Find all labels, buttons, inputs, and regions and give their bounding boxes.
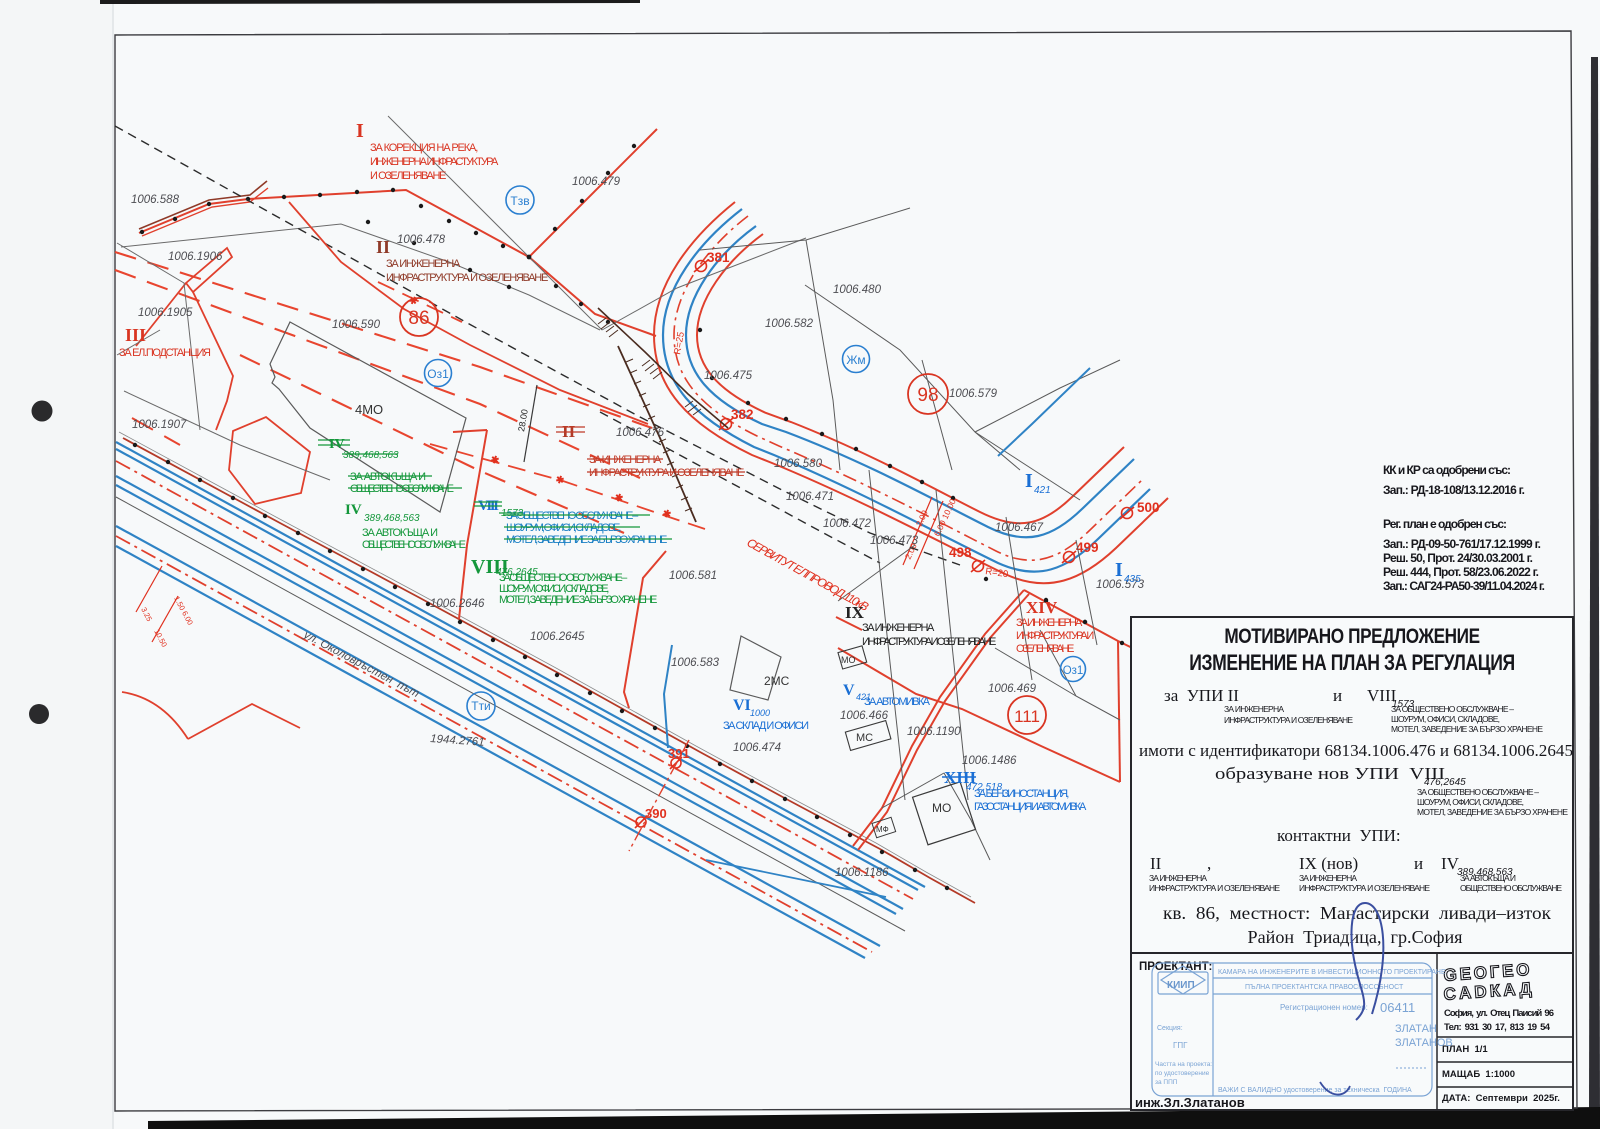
svg-text:1006.478: 1006.478 [397,234,446,246]
svg-text:МС: МС [856,732,873,744]
svg-text:II: II [1150,854,1162,873]
svg-text:ЗА ЕЛ.ПОДСТАНЦИЯ: ЗА ЕЛ.ПОДСТАНЦИЯ [119,347,211,359]
svg-text:ШОУРУМ, ОФИСИ, СКЛАДОВЕ,: ШОУРУМ, ОФИСИ, СКЛАДОВЕ, [506,522,621,534]
svg-text:390: 390 [645,806,667,821]
svg-text:ИНФРАСТРУКТУРА И ОЗЕЛЕНЯВАНЕ: ИНФРАСТРУКТУРА И ОЗЕЛЕНЯВАНЕ [862,636,996,648]
svg-text:ОБЩЕСТВЕНО ОБСЛУЖВАНЕ: ОБЩЕСТВЕНО ОБСЛУЖВАНЕ [362,539,466,551]
svg-text:06411: 06411 [1380,1000,1415,1015]
svg-text:389,468,563: 389,468,563 [364,513,420,524]
svg-text:1006.1486: 1006.1486 [962,755,1017,767]
svg-text:ИНФРАСТРУКТУРА И ОЗЕЛЕНЯВАНЕ: ИНФРАСТРУКТУРА И ОЗЕЛЕНЯВАНЕ [1224,715,1353,725]
svg-text:Тзв: Тзв [510,194,529,208]
svg-text:1006.583: 1006.583 [671,657,720,669]
svg-text:391: 391 [668,746,690,761]
svg-text:образуване нов УПИ VIII: образуване нов УПИ VIII [1215,764,1445,783]
svg-text:IX: IX [845,603,865,622]
svg-text:ЗА ОБЩЕСТВЕНО ОБСЛУЖВАНЕ –: ЗА ОБЩЕСТВЕНО ОБСЛУЖВАНЕ – [1417,787,1539,797]
svg-text:ЗА АВТОКЪЩА И: ЗА АВТОКЪЩА И [362,527,438,539]
svg-text:ШОУРУМ, ОФИСИ, СКЛАДОВЕ,: ШОУРУМ, ОФИСИ, СКЛАДОВЕ, [1391,714,1500,724]
svg-text:1006.1907: 1006.1907 [132,419,187,431]
svg-text:МО: МО [841,655,856,665]
svg-text:1006.581: 1006.581 [669,570,717,582]
svg-text:ЗА ОБЩЕСТВЕНО ОБСЛУЖВАНЕ –: ЗА ОБЩЕСТВЕНО ОБСЛУЖВАНЕ – [1391,704,1514,714]
svg-text:VI: VI [733,697,751,714]
svg-text:IV: IV [345,502,362,518]
svg-text:ЗА СКЛАД И ОФИСИ: ЗА СКЛАД И ОФИСИ [723,720,809,732]
svg-text:ИНФРАСТРУКТУРА И ОЗЕЛЕНЯВАНЕ: ИНФРАСТРУКТУРА И ОЗЕЛЕНЯВАНЕ [1299,883,1430,893]
svg-text:МОТИВИРАНО ПРЕДЛОЖЕНИЕ: МОТИВИРАНО ПРЕДЛОЖЕНИЕ [1224,624,1480,648]
svg-text:ЗЛАТАН: ЗЛАТАН [1395,1023,1437,1035]
svg-text:И ОЗЕЛЕНЯВАНЕ: И ОЗЕЛЕНЯВАНЕ [370,170,446,182]
svg-text:ЗА ИНЖЕНЕРНА: ЗА ИНЖЕНЕРНА [589,454,662,466]
svg-text:ЗА ИНЖЕНЕРНА: ЗА ИНЖЕНЕРНА [862,622,935,634]
svg-text:1006.474: 1006.474 [733,742,781,754]
svg-text:II: II [376,237,390,257]
svg-text:4МО: 4МО [355,402,383,417]
svg-text:КАМАРА НА ИНЖЕНЕРИТЕ В ИНВЕСТИ: КАМАРА НА ИНЖЕНЕРИТЕ В ИНВЕСТИЦИОННОТО П… [1218,969,1446,976]
svg-text:1006.2645: 1006.2645 [530,631,585,643]
svg-text:1006.588: 1006.588 [131,194,180,206]
svg-text:1006.467: 1006.467 [995,522,1044,534]
svg-text:ИНФРАСТРУКТУРА И ОЗЕЛЕНЯВАНЕ: ИНФРАСТРУКТУРА И ОЗЕЛЕНЯВАНЕ [386,272,548,284]
svg-text:1006.1906: 1006.1906 [168,251,223,263]
svg-text:V: V [843,682,855,699]
svg-text:98: 98 [917,385,938,406]
svg-text:Тти: Тти [471,699,491,713]
svg-text:Район Триадица, гр.София: Район Триадица, гр.София [1248,927,1463,947]
svg-text:Реш. 444, Прот. 58/23.06.2022: Реш. 444, Прот. 58/23.06.2022 г. [1383,565,1539,579]
svg-text:499: 499 [1076,540,1099,555]
svg-text:ГАЗОСТАНЦИЯ И АВТОМИВКА: ГАЗОСТАНЦИЯ И АВТОМИВКА [974,801,1087,813]
svg-text:1006.476: 1006.476 [616,427,665,439]
svg-text:381: 381 [707,250,730,265]
svg-text:по удостоверение: по удостоверение [1155,1070,1210,1077]
svg-text:1006.579: 1006.579 [949,388,998,400]
svg-text:МОТЕЛ, ЗАВЕДЕНИЕ ЗА БЪРЗО ХРАН: МОТЕЛ, ЗАВЕДЕНИЕ ЗА БЪРЗО ХРАНЕНЕ [499,594,657,606]
svg-text:III: III [125,325,146,345]
svg-text:и: и [1333,686,1342,705]
svg-text:XIV: XIV [1026,598,1058,617]
svg-text:1006.582: 1006.582 [765,318,814,330]
svg-text:ЗА ИНЖЕНЕРНА: ЗА ИНЖЕНЕРНА [386,258,461,270]
svg-text:ЗА ИНЖЕНЕРНА: ЗА ИНЖЕНЕРНА [1149,873,1207,883]
svg-text:ИНФРАСТРУКТУРА И ОЗЕЛЕНЯВАНЕ: ИНФРАСТРУКТУРА И ОЗЕЛЕНЯВАНЕ [1149,883,1280,893]
svg-text:1006.1190: 1006.1190 [907,726,961,738]
svg-text:контактни УПИ:: контактни УПИ: [1277,826,1401,845]
svg-text:ОЗЕЛЕНЯВАНЕ: ОЗЕЛЕНЯВАНЕ [1016,643,1074,655]
svg-text:ИНЖЕНЕРНА ИНФРАСТУКТУРА: ИНЖЕНЕРНА ИНФРАСТУКТУРА [370,156,499,168]
svg-text:Тел: 931 30 17, 813 19 5: Тел: 931 30 17, 813 19 54 [1444,1022,1551,1033]
svg-text:ЗА БЕНЗИНОСТАНЦИЯ,: ЗА БЕНЗИНОСТАНЦИЯ, [974,788,1069,800]
svg-text:1006.2646: 1006.2646 [430,598,485,610]
svg-text:за ППП: за ППП [1155,1079,1178,1086]
svg-text:1006.475: 1006.475 [704,370,753,382]
svg-text:МО: МО [932,801,951,815]
svg-text:I: I [356,120,364,142]
svg-text:КК и КР са одобрени със:: КК и КР са одобрени със: [1383,463,1511,477]
svg-text:1006.479: 1006.479 [572,176,621,188]
svg-text:МАЩАБ 1:1000: МАЩАБ 1:1000 [1442,1069,1515,1080]
svg-text:ИНФРАСТРУКТУРА И: ИНФРАСТРУКТУРА И [1016,630,1094,642]
svg-text:I: I [1115,559,1123,581]
svg-text:111: 111 [1014,707,1040,726]
svg-text:1006.472: 1006.472 [823,518,872,530]
svg-text:Жм: Жм [846,353,865,367]
svg-text:1006.480: 1006.480 [833,284,882,296]
svg-text:ЗА ИНЖЕНЕРНА: ЗА ИНЖЕНЕРНА [1016,617,1083,629]
svg-text:ЗА ИНЖЕНЕРНА: ЗА ИНЖЕНЕРНА [1224,704,1284,714]
svg-text:421: 421 [1034,485,1051,496]
svg-text:инж.Зл.Златанов: инж.Зл.Златанов [1135,1095,1245,1110]
svg-text:IX (нов): IX (нов) [1299,854,1358,873]
svg-text:Оз1: Оз1 [427,367,449,381]
svg-text:,: , [1207,854,1211,873]
svg-text:ЗА КОРЕКЦИЯ НА РЕКА,: ЗА КОРЕКЦИЯ НА РЕКА, [370,142,478,154]
svg-text:КИИП: КИИП [1167,980,1195,991]
svg-text:ЗА АВТОМИВКА: ЗА АВТОМИВКА [864,696,931,708]
svg-text:Оз1: Оз1 [1063,665,1084,677]
svg-text:1006.473: 1006.473 [870,535,919,547]
svg-text:1006.590: 1006.590 [332,319,381,331]
svg-text:I: I [1025,470,1033,492]
svg-text:ДАТА: Септември 2025г.: ДАТА: Септември 2025г. [1442,1093,1560,1104]
svg-text:ЗА ИНЖЕНЕРНА: ЗА ИНЖЕНЕРНА [1299,873,1357,883]
svg-text:435: 435 [1124,574,1141,585]
svg-text:Секция:: Секция: [1157,1025,1183,1032]
svg-text:ГПГ: ГПГ [1173,1041,1188,1050]
svg-text:ОБЩЕСТВЕНО ОБСЛУЖВАНЕ: ОБЩЕСТВЕНО ОБСЛУЖВАНЕ [350,483,454,495]
svg-text:Зап.: РД-18-108/13.12.2016 г.: Зап.: РД-18-108/13.12.2016 г. [1383,483,1525,497]
svg-text:Рег. план е одобрен със:: Рег. план е одобрен със: [1383,517,1507,531]
svg-text:МОТЕЛ, ЗАВЕДЕНИЕ ЗА БЪРЗО ХРАН: МОТЕЛ, ЗАВЕДЕНИЕ ЗА БЪРЗО ХРАНЕНЕ [1391,724,1543,734]
svg-text:1006.1186: 1006.1186 [835,867,889,879]
svg-text:ИНФРАСТРУКТУРА И ОЗЕЛЕНЯВАНЕ: ИНФРАСТРУКТУРА И ОЗЕЛЕНЯВАНЕ [589,467,744,479]
svg-text:389,468,563: 389,468,563 [343,450,399,461]
svg-text:1006.1905: 1006.1905 [138,307,193,319]
svg-text:382: 382 [731,407,754,422]
svg-text:ЗЛАТАНОВ: ЗЛАТАНОВ [1395,1037,1453,1049]
svg-text:86: 86 [408,308,429,329]
svg-text:ЗА ОБЩЕСТВЕНО ОБСЛУЖВАНЕ –: ЗА ОБЩЕСТВЕНО ОБСЛУЖВАНЕ – [506,510,639,522]
svg-text:Зап.: РД-09-50-761/17.12.1999: Зап.: РД-09-50-761/17.12.1999 г. [1383,537,1541,551]
svg-text:МОТЕЛ, ЗАВЕДЕНИЕ ЗА БЪРЗО ХРАН: МОТЕЛ, ЗАВЕДЕНИЕ ЗА БЪРЗО ХРАНЕНЕ [1417,807,1568,817]
svg-text:и: и [1414,854,1423,873]
svg-text:Регистрационен номер:: Регистрационен номер: [1280,1003,1368,1012]
svg-text:ЗА АВТОКЪЩА И: ЗА АВТОКЪЩА И [350,471,426,483]
svg-text:ИЗМЕНЕНИЕ НА ПЛАН ЗА РЕГУЛАЦИЯ: ИЗМЕНЕНИЕ НА ПЛАН ЗА РЕГУЛАЦИЯ [1189,651,1514,675]
svg-text:ОБЩЕСТВЕНО ОБСЛУЖВАНЕ: ОБЩЕСТВЕНО ОБСЛУЖВАНЕ [1460,883,1562,893]
svg-text:1000: 1000 [750,708,770,718]
svg-text:498: 498 [949,545,972,560]
svg-text:500: 500 [1137,500,1160,515]
svg-text:Частта на проекта:: Частта на проекта: [1155,1061,1212,1068]
svg-text:София, ул. Отец Паисий 96: София, ул. Отец Паисий 96 [1444,1008,1554,1019]
svg-text:МОТЕЛ, ЗАВЕДЕНИЕ ЗА БЪРЗО ХРАН: МОТЕЛ, ЗАВЕДЕНИЕ ЗА БЪРЗО ХРАНЕНЕ [506,534,667,546]
svg-text:Реш. 50, Прот. 24/30.03.2001 г: Реш. 50, Прот. 24/30.03.2001 г. [1383,551,1533,565]
svg-text:ВАЖИ С ВАЛИДНО удостоверение з: ВАЖИ С ВАЛИДНО удостоверение за техничес… [1218,1087,1412,1094]
svg-text:МФ: МФ [876,825,889,834]
svg-text:ШОУРУМ, ОФИСИ, СКЛАДОВЕ,: ШОУРУМ, ОФИСИ, СКЛАДОВЕ, [1417,797,1524,807]
svg-text:Зап.: САГ24-РА50-39/11.04.2024: Зап.: САГ24-РА50-39/11.04.2024 г. [1383,579,1545,593]
svg-text:за УПИ II: за УПИ II [1164,686,1239,705]
svg-text:1006.471: 1006.471 [786,491,834,503]
svg-text:1006.580: 1006.580 [774,458,823,470]
svg-text:ЗА АВТОКЪЩА И: ЗА АВТОКЪЩА И [1460,873,1516,883]
svg-text:2МС: 2МС [764,674,790,688]
svg-text:имоти с идентификатори 68134.1: имоти с идентификатори 68134.1006.476 и … [1139,741,1573,760]
svg-text:1006.466: 1006.466 [840,710,889,722]
svg-text:1006.469: 1006.469 [988,683,1037,695]
